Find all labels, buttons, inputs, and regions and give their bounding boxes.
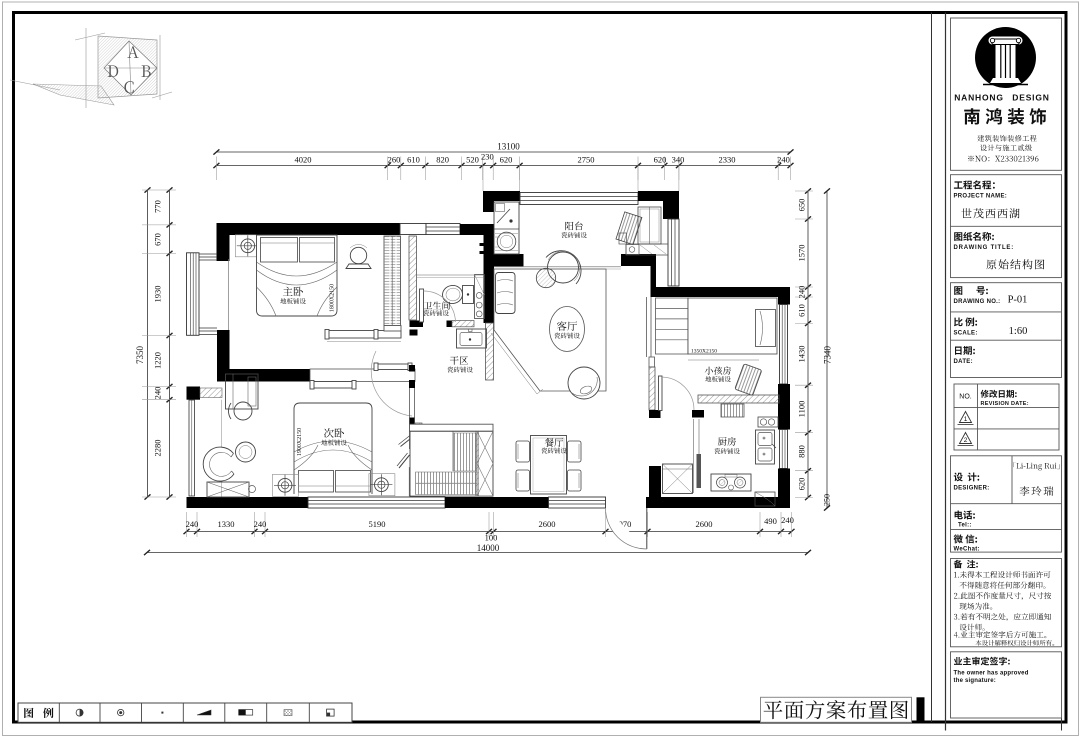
- svg-text:Tel::: Tel::: [958, 523, 972, 529]
- svg-text:490: 490: [764, 516, 777, 526]
- svg-text:620: 620: [654, 155, 667, 165]
- svg-text:1:60: 1:60: [1009, 326, 1028, 337]
- svg-text:1220: 1220: [153, 352, 163, 369]
- svg-text:The owner has approved: The owner has approved: [954, 671, 1029, 677]
- svg-text:DESIGNER:: DESIGNER:: [954, 486, 990, 492]
- svg-text:1330: 1330: [218, 519, 235, 529]
- svg-text:7350: 7350: [135, 346, 145, 365]
- svg-text:240: 240: [186, 519, 199, 529]
- svg-text:260: 260: [388, 155, 401, 165]
- svg-text:1570: 1570: [797, 245, 807, 262]
- svg-text:2: 2: [964, 437, 968, 444]
- svg-text:250: 250: [823, 494, 832, 506]
- svg-text:2600: 2600: [696, 519, 713, 529]
- svg-text:5190: 5190: [369, 519, 386, 529]
- svg-text:WeChat:: WeChat:: [954, 547, 980, 553]
- svg-text:670: 670: [153, 233, 163, 246]
- svg-text:DATE:: DATE:: [954, 359, 973, 365]
- svg-text:620: 620: [500, 155, 513, 165]
- svg-text:240: 240: [254, 519, 267, 529]
- svg-text:820: 820: [436, 155, 449, 165]
- svg-text:610: 610: [797, 304, 807, 317]
- svg-text:880: 880: [797, 445, 807, 458]
- svg-text:620: 620: [797, 478, 807, 491]
- svg-text:1350X2150: 1350X2150: [691, 348, 717, 354]
- svg-text:770: 770: [153, 200, 163, 213]
- svg-text:2280: 2280: [153, 440, 163, 457]
- svg-text:the signature:: the signature:: [954, 678, 996, 684]
- svg-text:SCALE:: SCALE:: [954, 331, 978, 337]
- svg-text:520: 520: [466, 155, 479, 165]
- svg-text:DESIGN: DESIGN: [1012, 93, 1049, 103]
- svg-text:NO.: NO.: [959, 394, 972, 401]
- svg-text:1930: 1930: [153, 286, 163, 303]
- svg-text:4020: 4020: [295, 155, 312, 165]
- svg-text:1900X2150: 1900X2150: [297, 428, 303, 456]
- svg-text:DRAWING NO.:: DRAWING NO.:: [954, 299, 1001, 305]
- svg-text:240: 240: [153, 387, 163, 400]
- svg-text:NANHONG: NANHONG: [954, 93, 1004, 103]
- svg-text:14000: 14000: [477, 543, 500, 553]
- svg-text:2600: 2600: [539, 519, 556, 529]
- svg-text:340: 340: [672, 155, 685, 165]
- svg-text:650: 650: [797, 199, 807, 212]
- svg-text:1800X2150: 1800X2150: [330, 284, 336, 312]
- svg-text:610: 610: [407, 155, 420, 165]
- svg-text:7340: 7340: [823, 346, 833, 365]
- svg-text:100: 100: [485, 533, 498, 543]
- svg-text:DRAWING TITLE:: DRAWING TITLE:: [954, 245, 1015, 251]
- svg-text:240: 240: [797, 286, 807, 299]
- svg-text:P-01: P-01: [1008, 295, 1028, 306]
- svg-text:2750: 2750: [578, 155, 595, 165]
- svg-text:230: 230: [481, 152, 494, 162]
- svg-text:PROJECT NAME:: PROJECT NAME:: [954, 194, 1008, 200]
- svg-text:1: 1: [964, 416, 968, 423]
- svg-text:REVISION DATE:: REVISION DATE:: [981, 401, 1029, 407]
- svg-text:240: 240: [781, 515, 794, 525]
- svg-text:1100: 1100: [797, 401, 807, 418]
- svg-text:2330: 2330: [719, 155, 736, 165]
- svg-text:240: 240: [777, 155, 790, 165]
- svg-text:13100: 13100: [497, 142, 520, 152]
- svg-text:1430: 1430: [797, 346, 807, 363]
